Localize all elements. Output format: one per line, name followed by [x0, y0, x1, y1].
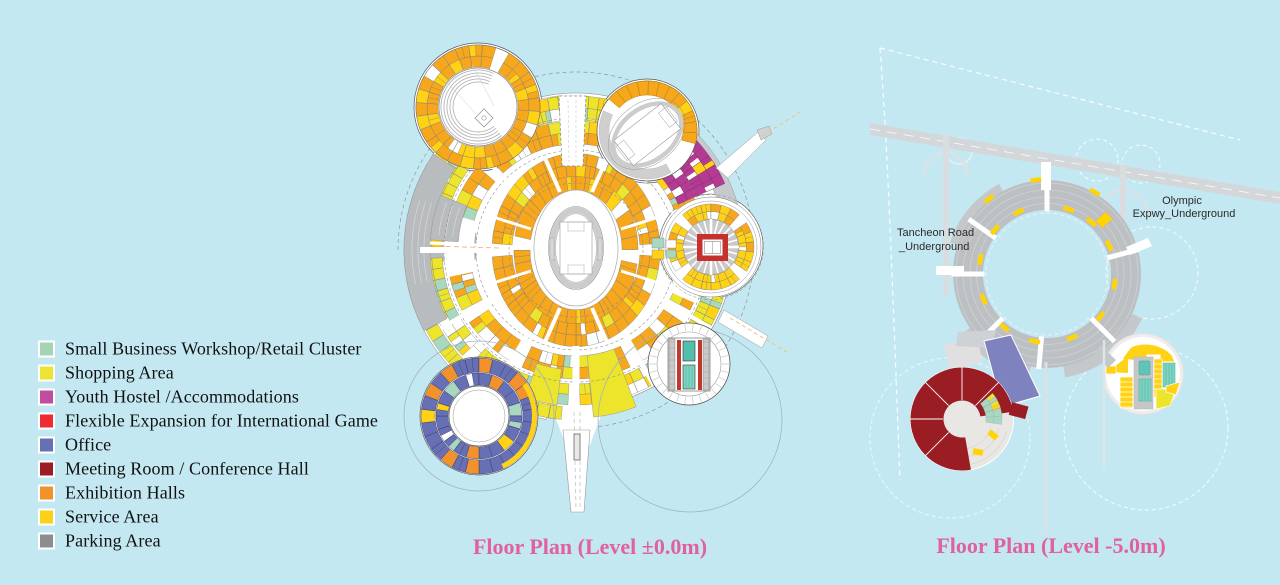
svg-text:Exhibition Halls: Exhibition Halls [65, 483, 185, 503]
svg-text:_Underground: _Underground [898, 241, 969, 253]
svg-text:Office: Office [65, 435, 111, 455]
svg-text:Parking Area: Parking Area [65, 531, 161, 551]
svg-text:Expwy_Underground: Expwy_Underground [1133, 208, 1236, 220]
svg-text:Floor Plan (Level -5.0m): Floor Plan (Level -5.0m) [936, 533, 1165, 558]
svg-text:Olympic: Olympic [1162, 195, 1202, 207]
svg-text:Floor Plan (Level ±0.0m): Floor Plan (Level ±0.0m) [473, 534, 707, 559]
svg-text:Meeting Room / Conference Hall: Meeting Room / Conference Hall [65, 459, 309, 479]
svg-text:Flexible Expansion for Interna: Flexible Expansion for International Gam… [65, 411, 378, 431]
svg-text:Tancheon Road: Tancheon Road [897, 227, 974, 239]
svg-text:Youth Hostel /Accommodations: Youth Hostel /Accommodations [65, 387, 299, 407]
svg-text:Small Business Workshop/Retail: Small Business Workshop/Retail Cluster [65, 339, 362, 359]
svg-text:Shopping Area: Shopping Area [65, 363, 174, 383]
svg-text:Service Area: Service Area [65, 507, 159, 527]
